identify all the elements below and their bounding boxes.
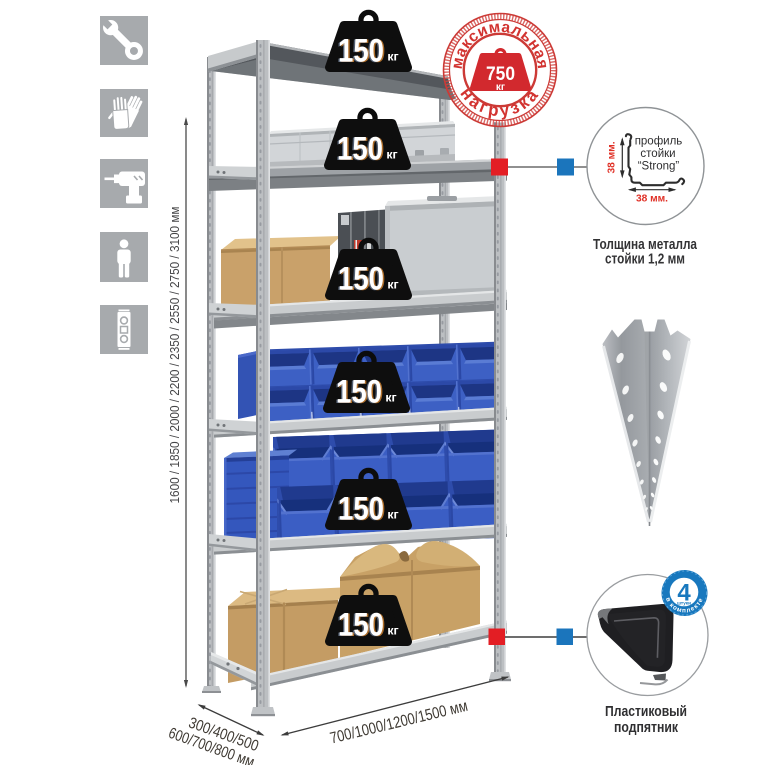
svg-text:кг: кг bbox=[496, 82, 505, 93]
svg-text:“Strong”: “Strong” bbox=[638, 161, 680, 173]
svg-text:профиль: профиль bbox=[635, 136, 683, 148]
svg-text:38 мм.: 38 мм. bbox=[636, 194, 668, 205]
svg-text:1600 / 1850 / 2000 / 2200 / 23: 1600 / 1850 / 2000 / 2200 / 2350 / 2550 … bbox=[167, 207, 182, 504]
svg-text:стойки 1,2 мм: стойки 1,2 мм bbox=[605, 252, 685, 268]
svg-text:штуки: штуки bbox=[677, 601, 691, 606]
svg-text:подпятник: подпятник bbox=[614, 720, 678, 736]
svg-text:38 мм.: 38 мм. bbox=[607, 141, 618, 173]
svg-text:Пластиковый: Пластиковый bbox=[605, 704, 687, 720]
svg-text:стойки: стойки bbox=[640, 148, 675, 160]
